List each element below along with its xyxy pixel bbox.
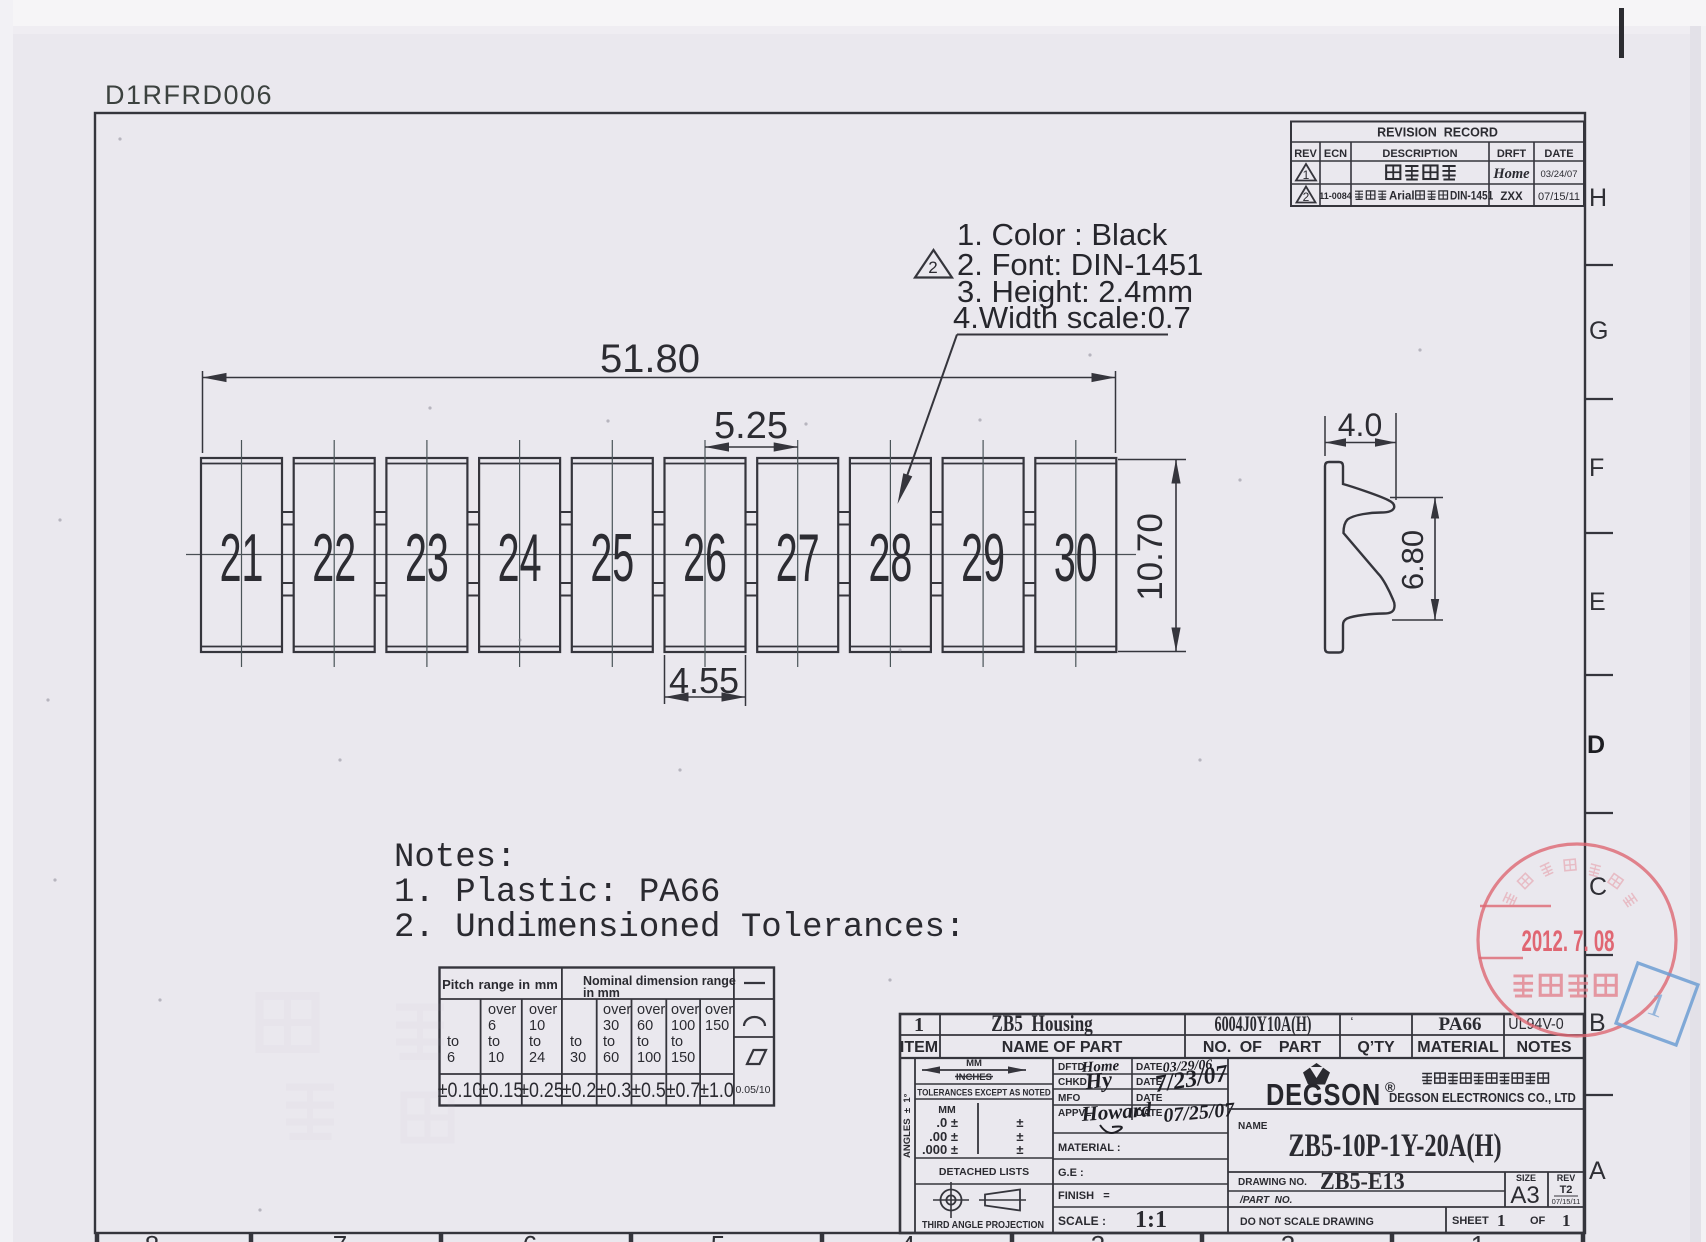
svg-text:±0.3: ±0.3 xyxy=(597,1079,632,1103)
svg-text:30: 30 xyxy=(570,1050,586,1066)
svg-text:24: 24 xyxy=(498,520,542,596)
svg-text:DO NOT SCALE DRAWING: DO NOT SCALE DRAWING xyxy=(1240,1216,1374,1228)
svg-text:ITEM: ITEM xyxy=(900,1039,938,1056)
svg-text:T2: T2 xyxy=(1560,1184,1573,1196)
svg-text:±0.5: ±0.5 xyxy=(631,1079,666,1103)
svg-text:OF: OF xyxy=(1530,1215,1546,1227)
svg-text:ZB5-10P-1Y-20A(H): ZB5-10P-1Y-20A(H) xyxy=(1288,1128,1501,1164)
svg-text:over: over xyxy=(671,1002,699,1018)
svg-text:to: to xyxy=(529,1034,541,1050)
svg-text:E: E xyxy=(1589,588,1606,616)
svg-text:to: to xyxy=(447,1034,459,1050)
svg-text:07/15/11: 07/15/11 xyxy=(1552,1197,1581,1206)
svg-text:INCHES: INCHES xyxy=(956,1072,992,1083)
svg-text:‘: ‘ xyxy=(1351,1014,1354,1029)
svg-text:23: 23 xyxy=(405,520,449,596)
svg-text:100: 100 xyxy=(671,1018,695,1034)
svg-text:to: to xyxy=(671,1034,683,1050)
svg-text:4.Width scale:0.7: 4.Width scale:0.7 xyxy=(953,300,1191,335)
svg-text:2: 2 xyxy=(1303,190,1310,204)
svg-text:UL94V-0: UL94V-0 xyxy=(1508,1017,1563,1034)
svg-text:11-0084: 11-0084 xyxy=(1319,191,1352,201)
svg-text:29: 29 xyxy=(961,520,1005,596)
svg-text:ZB5-E13: ZB5-E13 xyxy=(1320,1167,1405,1194)
svg-text:Home: Home xyxy=(1492,166,1530,182)
svg-text:F: F xyxy=(1589,454,1604,482)
svg-text:Arial: Arial xyxy=(1389,191,1415,203)
svg-text:over: over xyxy=(488,1002,516,1018)
svg-text:.000 ±: .000 ± xyxy=(922,1142,958,1157)
svg-text:ZB5 Housing: ZB5 Housing xyxy=(991,1012,1093,1037)
svg-text:to: to xyxy=(570,1034,582,1050)
svg-text:to: to xyxy=(603,1034,615,1050)
svg-text:±1.0: ±1.0 xyxy=(699,1079,734,1103)
svg-text:4.55: 4.55 xyxy=(669,660,739,701)
svg-text:07/15/11: 07/15/11 xyxy=(1538,191,1580,203)
svg-text:H: H xyxy=(1589,184,1607,212)
svg-text:26: 26 xyxy=(683,520,727,596)
svg-text:DESCRIPTION: DESCRIPTION xyxy=(1382,148,1457,160)
svg-text:25: 25 xyxy=(590,520,634,596)
svg-text:over: over xyxy=(603,1002,631,1018)
svg-text:in mm: in mm xyxy=(583,986,620,1000)
svg-text:150: 150 xyxy=(671,1050,695,1066)
svg-text:to: to xyxy=(637,1034,649,1050)
svg-text:NOTES: NOTES xyxy=(1516,1039,1571,1056)
svg-text:±0.2: ±0.2 xyxy=(562,1079,597,1103)
svg-text:60: 60 xyxy=(603,1050,619,1066)
svg-text:D1RFRD006: D1RFRD006 xyxy=(105,80,273,110)
svg-text:2012. 7. 08: 2012. 7. 08 xyxy=(1521,925,1614,959)
svg-text:03/24/07: 03/24/07 xyxy=(1541,169,1578,180)
svg-text:2: 2 xyxy=(928,258,937,277)
svg-text:10.70: 10.70 xyxy=(1131,513,1170,601)
svg-text:4.0: 4.0 xyxy=(1338,407,1382,443)
svg-text:DRAWING NO.: DRAWING NO. xyxy=(1238,1177,1307,1188)
svg-text:1: 1 xyxy=(1497,1211,1506,1230)
svg-text:TOLERANCES EXCEPT AS NOTED: TOLERANCES EXCEPT AS NOTED xyxy=(917,1087,1050,1098)
svg-text:100: 100 xyxy=(637,1050,661,1066)
svg-text:±0.10: ±0.10 xyxy=(438,1079,483,1103)
svg-text:1: 1 xyxy=(1303,168,1310,182)
svg-text:NAME OF PART: NAME OF PART xyxy=(1002,1039,1123,1056)
svg-text:150: 150 xyxy=(705,1018,729,1034)
svg-text:6004J0Y10A(H): 6004J0Y10A(H) xyxy=(1215,1012,1312,1037)
svg-text:over: over xyxy=(705,1002,733,1018)
svg-text:DATE: DATE xyxy=(1544,148,1573,160)
svg-text:Q’TY: Q’TY xyxy=(1357,1039,1395,1056)
svg-text:2. Undimensioned Tolerances:: 2. Undimensioned Tolerances: xyxy=(394,909,965,947)
svg-text:REV: REV xyxy=(1294,148,1317,160)
svg-text:CHKD: CHKD xyxy=(1058,1077,1087,1088)
svg-text:5: 5 xyxy=(711,1230,725,1242)
svg-text:/PART NO.: /PART NO. xyxy=(1239,1195,1292,1206)
svg-text:±0.15: ±0.15 xyxy=(479,1079,524,1103)
svg-text:FINISH =: FINISH = xyxy=(1058,1190,1110,1202)
svg-text:over: over xyxy=(637,1002,665,1018)
svg-text:ZXX: ZXX xyxy=(1500,191,1523,203)
svg-text:G: G xyxy=(1589,317,1608,345)
svg-text:A: A xyxy=(1589,1157,1606,1185)
svg-text:D: D xyxy=(1587,731,1605,759)
svg-text:Hy: Hy xyxy=(1083,1066,1114,1094)
svg-text:MATERIAL: MATERIAL xyxy=(1417,1039,1499,1056)
svg-text:DRFT: DRFT xyxy=(1497,148,1527,160)
svg-text:DIN-1451: DIN-1451 xyxy=(1450,190,1493,203)
svg-text:DEGSON ELECTRONICS CO., LTD: DEGSON ELECTRONICS CO., LTD xyxy=(1389,1091,1576,1106)
svg-text:51.80: 51.80 xyxy=(600,337,700,381)
svg-text:NO. OF PART: NO. OF PART xyxy=(1203,1039,1322,1056)
svg-text:REVISION RECORD: REVISION RECORD xyxy=(1377,126,1498,140)
svg-text:60: 60 xyxy=(637,1018,653,1034)
svg-text:5.25: 5.25 xyxy=(714,405,788,447)
svg-text:1: 1 xyxy=(914,1014,924,1036)
svg-text:10: 10 xyxy=(488,1050,504,1066)
svg-text:10: 10 xyxy=(529,1018,545,1034)
svg-text:NAME: NAME xyxy=(1238,1121,1268,1132)
svg-text:A3: A3 xyxy=(1510,1182,1539,1209)
svg-text:PA66: PA66 xyxy=(1439,1014,1482,1035)
svg-text:ECN: ECN xyxy=(1324,148,1347,160)
svg-text:DETACHED LISTS: DETACHED LISTS xyxy=(939,1166,1029,1178)
svg-text:8: 8 xyxy=(145,1230,159,1242)
svg-text:27: 27 xyxy=(776,520,820,596)
svg-text:Notes:: Notes: xyxy=(394,839,516,877)
svg-text:30: 30 xyxy=(603,1018,619,1034)
svg-text:±: ± xyxy=(1016,1142,1023,1157)
svg-text:22: 22 xyxy=(312,520,356,596)
svg-text:THIRD ANGLE PROJECTION: THIRD ANGLE PROJECTION xyxy=(922,1220,1044,1232)
svg-text:30: 30 xyxy=(1054,520,1098,596)
svg-text:28: 28 xyxy=(868,520,912,596)
svg-text:G.E :: G.E : xyxy=(1058,1167,1084,1179)
svg-text:6: 6 xyxy=(447,1050,455,1066)
svg-text:1. Plastic: PA66: 1. Plastic: PA66 xyxy=(394,874,720,912)
svg-text:over: over xyxy=(529,1002,557,1018)
svg-text:7: 7 xyxy=(333,1230,347,1242)
svg-text:±0.7: ±0.7 xyxy=(666,1079,701,1103)
svg-text:Howard: Howard xyxy=(1080,1097,1153,1126)
svg-text:1:1: 1:1 xyxy=(1135,1207,1167,1233)
svg-text:C: C xyxy=(1589,873,1607,901)
svg-text:DEGSON: DEGSON xyxy=(1266,1078,1381,1113)
svg-text:to: to xyxy=(488,1034,500,1050)
svg-text:0.05/10: 0.05/10 xyxy=(735,1084,770,1096)
svg-text:.0 ±: .0 ± xyxy=(936,1115,958,1130)
svg-text:1: 1 xyxy=(1562,1211,1571,1230)
svg-text:21: 21 xyxy=(220,520,264,596)
svg-text:24: 24 xyxy=(529,1050,545,1066)
svg-text:±: ± xyxy=(1016,1115,1023,1130)
svg-text:6: 6 xyxy=(523,1230,537,1242)
svg-text:MM: MM xyxy=(966,1058,982,1069)
svg-text:MATERIAL :: MATERIAL : xyxy=(1058,1142,1121,1154)
svg-text:SHEET: SHEET xyxy=(1452,1215,1489,1227)
svg-text:Pitch range in mm: Pitch range in mm xyxy=(442,977,558,992)
svg-text:SCALE :: SCALE : xyxy=(1058,1214,1106,1228)
svg-text:ANGLES ± 1°: ANGLES ± 1° xyxy=(902,1093,913,1158)
svg-text:±0.25: ±0.25 xyxy=(519,1079,564,1103)
svg-text:MFO: MFO xyxy=(1058,1093,1080,1104)
svg-text:6.80: 6.80 xyxy=(1395,530,1430,590)
svg-text:6: 6 xyxy=(488,1018,496,1034)
svg-text:REV: REV xyxy=(1557,1173,1576,1183)
